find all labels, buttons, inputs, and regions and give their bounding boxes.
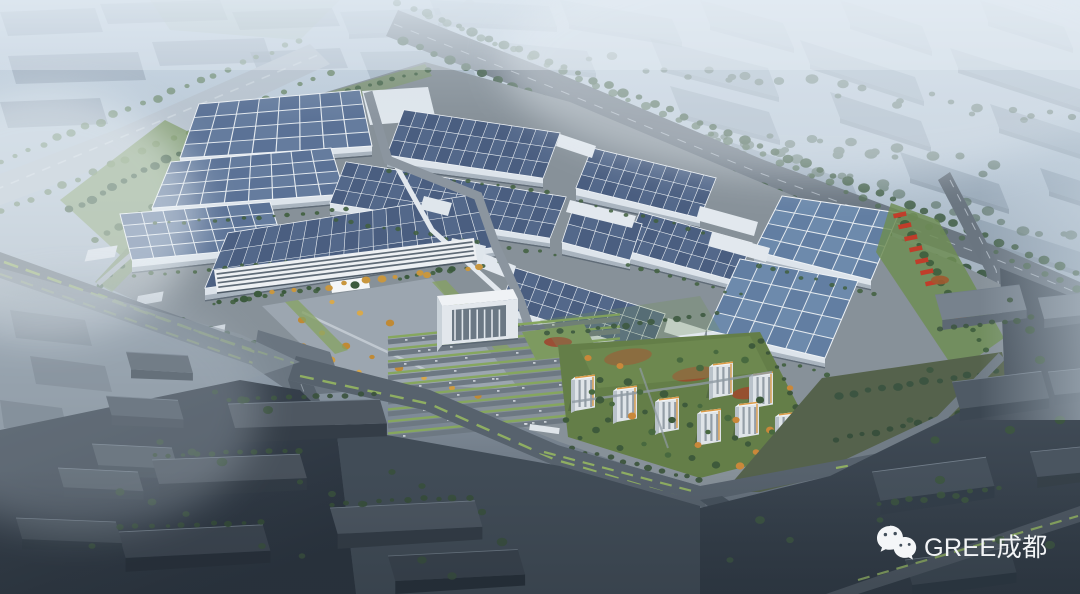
svg-text:GREE成都: GREE成都 <box>924 534 1048 562</box>
